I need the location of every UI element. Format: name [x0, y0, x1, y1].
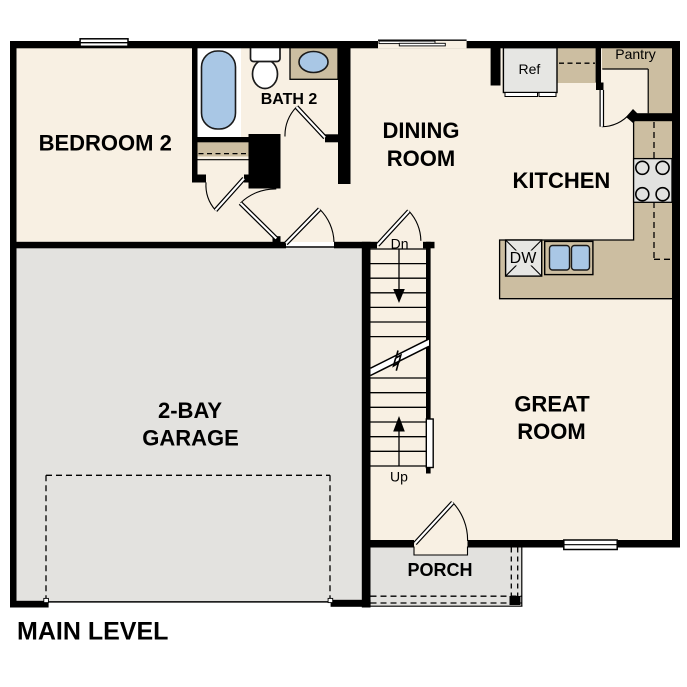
svg-text:ROOM: ROOM: [387, 146, 455, 171]
svg-text:PORCH: PORCH: [407, 560, 472, 580]
svg-text:BEDROOM 2: BEDROOM 2: [39, 131, 172, 156]
svg-text:ROOM: ROOM: [517, 419, 585, 444]
svg-text:Up: Up: [390, 469, 408, 485]
svg-text:GARAGE: GARAGE: [142, 426, 239, 451]
svg-text:2-BAY: 2-BAY: [158, 398, 222, 423]
svg-text:DW: DW: [510, 250, 538, 267]
svg-text:Dn: Dn: [391, 235, 409, 251]
svg-text:Ref: Ref: [519, 61, 541, 77]
svg-text:BATH 2: BATH 2: [261, 91, 318, 108]
svg-text:KITCHEN: KITCHEN: [513, 168, 611, 193]
svg-text:Pantry: Pantry: [615, 46, 655, 62]
svg-text:GREAT: GREAT: [514, 392, 590, 417]
svg-text:MAIN LEVEL: MAIN LEVEL: [17, 618, 168, 646]
svg-text:DINING: DINING: [383, 118, 460, 143]
